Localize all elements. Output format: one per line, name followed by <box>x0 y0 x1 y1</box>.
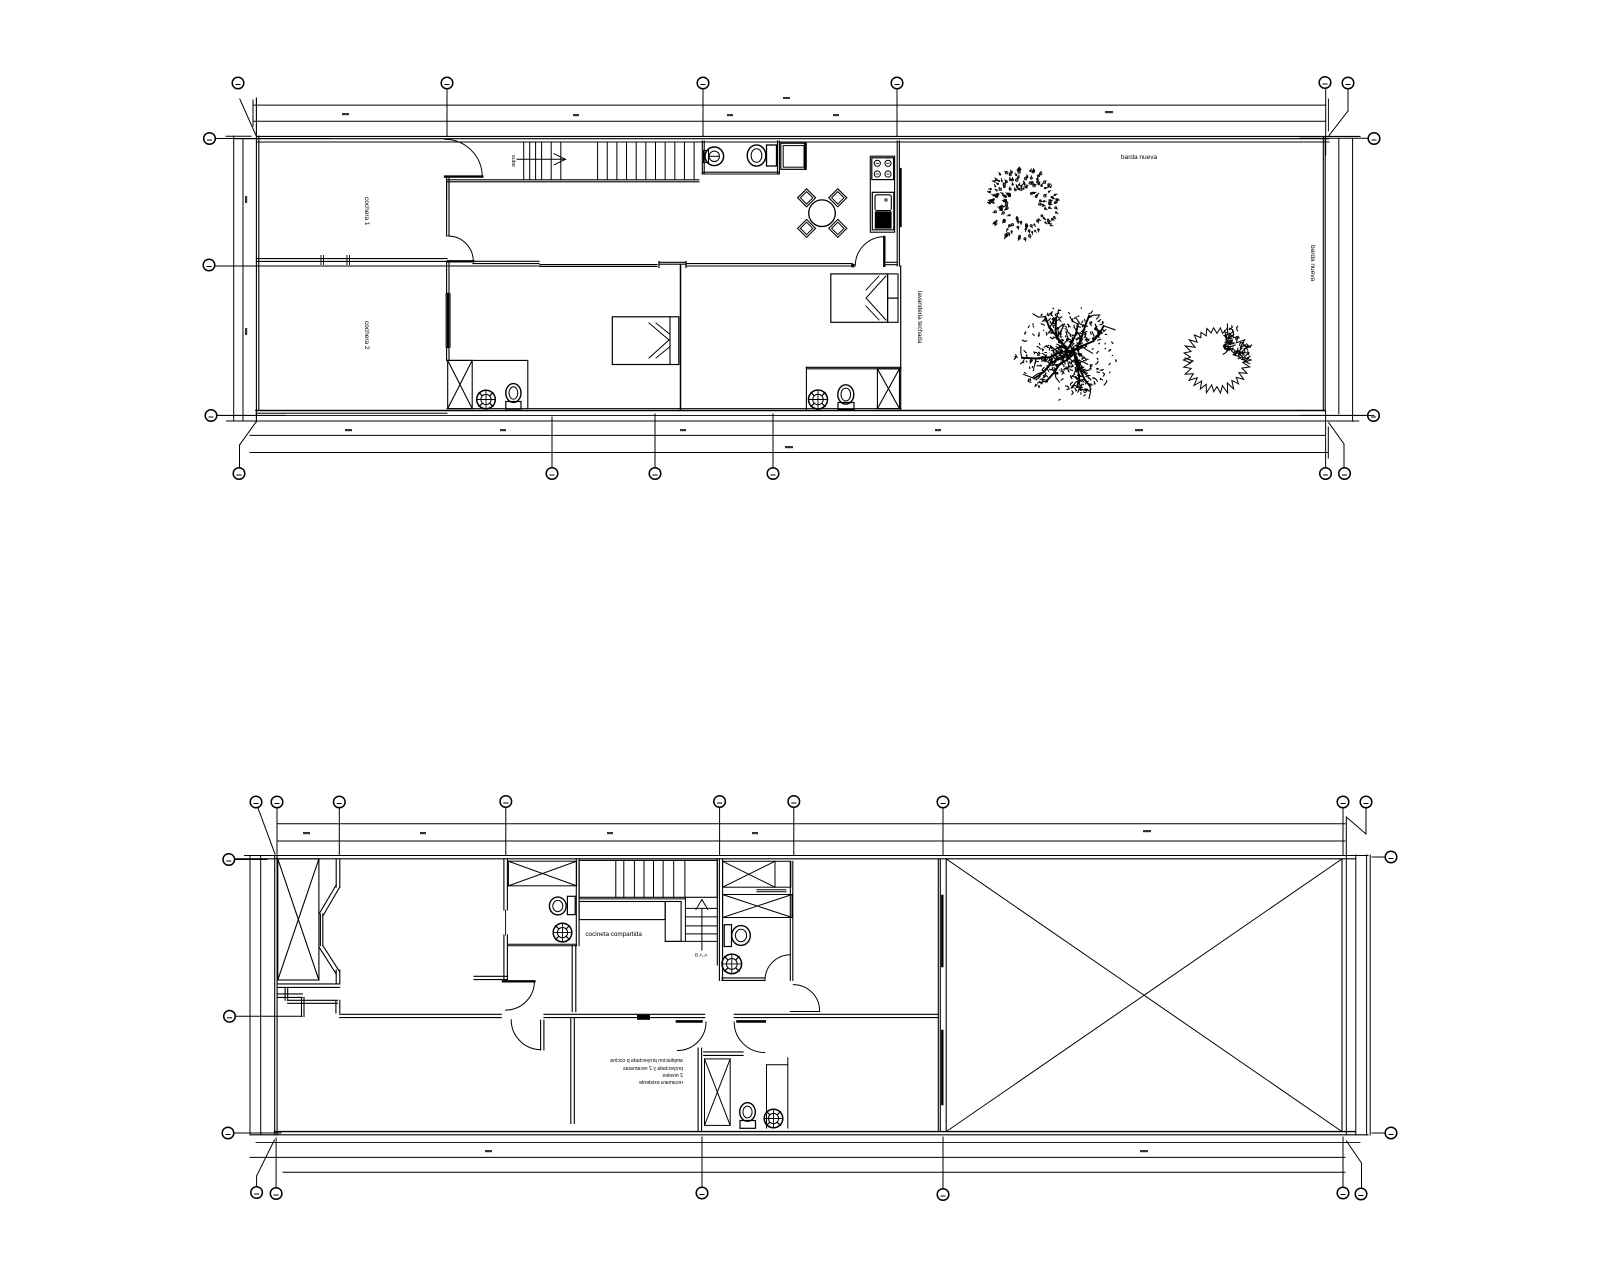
svg-text:cochera 2: cochera 2 <box>363 321 370 350</box>
svg-text:proyectada y 2 recamaras: proyectada y 2 recamaras <box>623 1066 683 1072</box>
svg-text:ampliacion proyectada p cocina: ampliacion proyectada p cocina <box>610 1058 683 1064</box>
svg-text:2 niveles: 2 niveles <box>662 1073 683 1079</box>
svg-text:lavanderia techada: lavanderia techada <box>916 291 923 344</box>
svg-text:cocineta compartida: cocineta compartida <box>586 931 643 938</box>
svg-text:B.A.A: B.A.A <box>695 953 708 959</box>
svg-text:barda nueva: barda nueva <box>1309 245 1316 282</box>
svg-text:recamara existente: recamara existente <box>639 1080 683 1086</box>
svg-text:barda nueva: barda nueva <box>1121 154 1158 161</box>
svg-text:sube: sube <box>510 155 516 167</box>
svg-text:cochera 1: cochera 1 <box>363 197 370 226</box>
